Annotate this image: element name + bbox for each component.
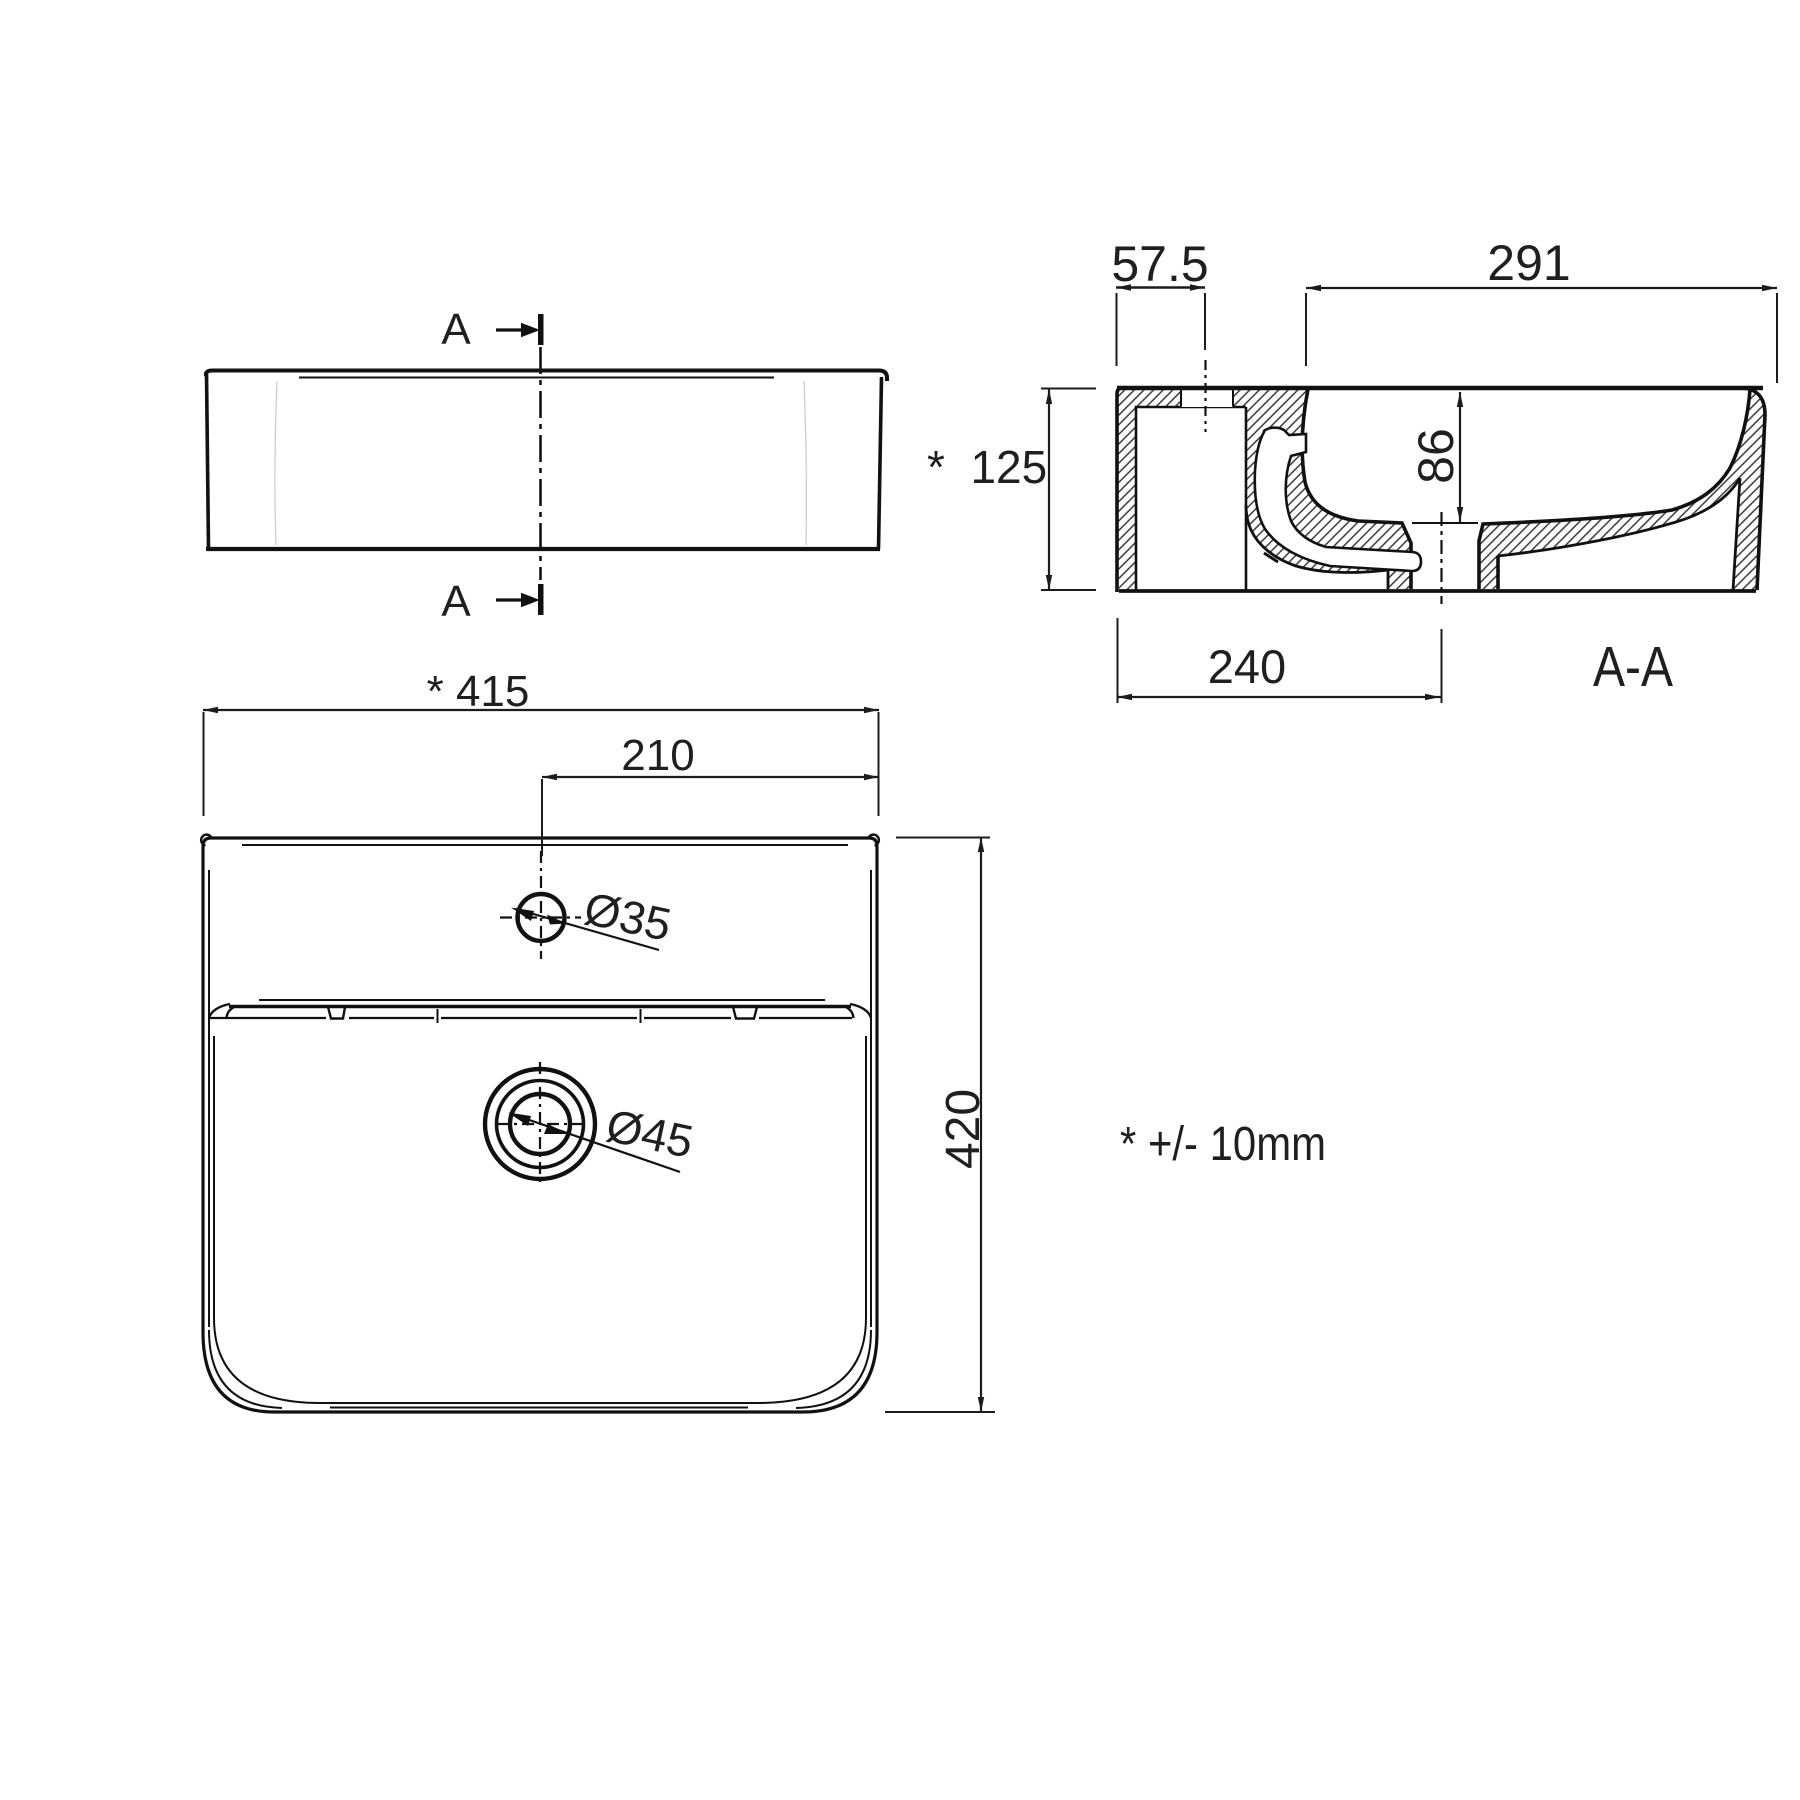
- svg-text:57.5: 57.5: [1111, 236, 1208, 292]
- svg-text:291: 291: [1487, 235, 1570, 291]
- svg-text:210: 210: [621, 731, 694, 780]
- svg-text:240: 240: [1208, 640, 1286, 693]
- svg-text:* +/- 10mm: * +/- 10mm: [1120, 1118, 1326, 1171]
- svg-text:A: A: [441, 305, 471, 354]
- svg-text:* 125: * 125: [927, 441, 1047, 493]
- svg-text:86: 86: [1408, 428, 1464, 484]
- svg-text:A: A: [441, 577, 471, 626]
- svg-text:* 415: * 415: [427, 667, 530, 716]
- svg-text:A-A: A-A: [1593, 635, 1673, 699]
